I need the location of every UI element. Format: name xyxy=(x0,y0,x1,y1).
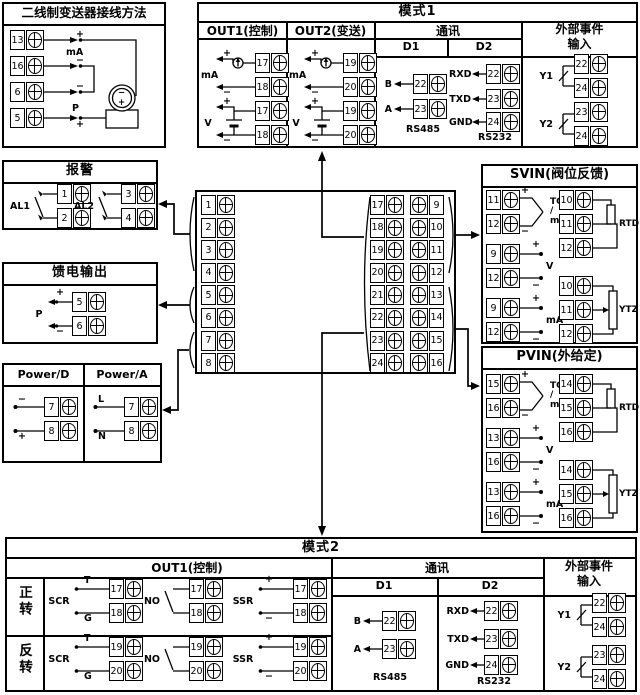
terminal-number: 19 xyxy=(343,101,358,121)
terminal-number: 18 xyxy=(109,603,124,623)
terminal: 6 xyxy=(72,316,106,336)
terminal-number: 14 xyxy=(559,374,574,394)
terminal-number: 1 xyxy=(57,184,72,204)
screw-terminal-icon xyxy=(217,240,235,260)
terminal: 20 xyxy=(343,125,377,145)
terminal-number: 5 xyxy=(201,285,216,305)
screw-terminal-icon xyxy=(205,661,223,681)
terminal: 19 xyxy=(370,240,404,260)
left-arrow-wire xyxy=(472,89,486,109)
terminal-number: 17 xyxy=(189,579,204,599)
terminal-number: 19 xyxy=(343,53,358,73)
screw-terminal-icon xyxy=(575,484,593,504)
terminal: 14 xyxy=(559,374,593,394)
signal-label: GND xyxy=(443,660,470,671)
mode1-event-header: 外部事件输入 xyxy=(523,22,636,52)
terminal: 16 xyxy=(410,353,444,373)
transmitter-plus: + xyxy=(118,99,125,108)
terminal: 17 xyxy=(370,195,404,215)
terminal-number: 2 xyxy=(57,208,72,228)
pvin-v-group: 13 16 + − V xyxy=(486,428,553,472)
terminal: 6 xyxy=(10,82,44,102)
left-arrow-wire xyxy=(470,629,484,649)
screw-terminal-icon xyxy=(502,482,520,502)
screw-terminal-icon xyxy=(271,101,289,121)
terminal: 2 xyxy=(201,218,235,238)
terminal: 3 xyxy=(201,240,235,260)
transmitter-box: 二线制变送器接线方法 13 16 6 5 + mA − − P + − + xyxy=(2,2,166,148)
signal-label: RXD xyxy=(449,69,472,80)
alarm-title: 报警 xyxy=(4,162,156,184)
transmitter-terminals: 13 16 6 5 xyxy=(10,30,44,128)
terminal: 8 xyxy=(44,421,78,441)
scr-label: SCR xyxy=(47,654,71,665)
v-label: V xyxy=(546,261,553,272)
terminal-number: 10 xyxy=(429,218,444,238)
svin-box: SVIN(阀位反馈) 11 12 + − TC/mV 9 12 + − xyxy=(481,164,638,344)
mode2-row1-no-group: NO 17 18 xyxy=(143,579,223,623)
screw-terminal-icon xyxy=(398,611,416,631)
voltage-input-wires: + − xyxy=(520,244,546,288)
terminal-number: 12 xyxy=(486,322,501,342)
screw-terminal-icon xyxy=(271,77,289,97)
screw-terminal-icon xyxy=(575,398,593,418)
terminal-number: 17 xyxy=(255,101,270,121)
screw-terminal-icon xyxy=(410,353,428,373)
screw-terminal-icon xyxy=(26,30,44,50)
terminal: 3 xyxy=(121,184,155,204)
terminal: 15 xyxy=(559,398,593,418)
terminal-number: 23 xyxy=(486,89,501,109)
center-right-column: 9 10 11 12 13 14 15 16 xyxy=(410,195,444,373)
terminal-number: 22 xyxy=(486,64,501,84)
terminal: 24 xyxy=(370,353,404,373)
terminal: 12 xyxy=(486,268,520,288)
terminal: 20 xyxy=(343,77,377,97)
row-label-forward: 正转 xyxy=(14,585,34,618)
mode2-d2-header: D2 xyxy=(437,579,543,592)
terminal: 19 xyxy=(343,53,377,73)
terminal-number: 22 xyxy=(382,611,397,631)
terminal-number: 20 xyxy=(343,125,358,145)
terminal-number: 15 xyxy=(486,374,501,394)
left-arrow-wire xyxy=(393,99,413,119)
terminal-number: 22 xyxy=(574,54,589,74)
minus-sign: − xyxy=(76,56,84,66)
screw-terminal-icon xyxy=(386,263,404,283)
screw-terminal-icon xyxy=(410,263,428,283)
pvin-title: PVIN(外给定) xyxy=(483,348,636,370)
ytz-label: YTZ xyxy=(619,305,638,315)
terminal-number: 24 xyxy=(574,126,589,146)
screw-terminal-icon xyxy=(359,77,377,97)
screw-terminal-icon xyxy=(217,308,235,328)
mode1-out2-ma-group: mA + − 19 20 xyxy=(289,53,377,97)
terminal-number: 22 xyxy=(370,308,385,328)
screw-terminal-icon xyxy=(502,244,520,264)
terminal-number: 7 xyxy=(44,397,59,417)
rtd-resistor-wires xyxy=(593,374,619,442)
terminal: 24 xyxy=(592,617,626,637)
terminal: 11 xyxy=(559,214,593,234)
terminal: 12 xyxy=(486,322,520,342)
screw-terminal-icon xyxy=(502,506,520,526)
screw-terminal-icon xyxy=(386,331,404,351)
screw-terminal-icon xyxy=(88,316,106,336)
terminal: 16 xyxy=(559,508,593,528)
center-mid-column: 17 18 19 20 21 22 23 24 xyxy=(370,195,404,373)
mode1-comm-header: 通讯 xyxy=(375,22,521,39)
terminal-number: 1 xyxy=(201,195,216,215)
row-label-reverse: 反转 xyxy=(14,643,34,676)
terminal-number: 4 xyxy=(201,263,216,283)
terminal-number: 6 xyxy=(201,308,216,328)
terminal-number: 18 xyxy=(255,77,270,97)
wiring-diagram: 二线制变送器接线方法 13 16 6 5 + mA − − P + − + 模式… xyxy=(0,0,640,695)
screw-terminal-icon xyxy=(575,238,593,258)
terminal: 1 xyxy=(201,195,235,215)
al2-label: AL2 xyxy=(72,201,95,212)
terminal-number: 21 xyxy=(370,285,385,305)
screw-terminal-icon xyxy=(271,125,289,145)
terminal-number: 15 xyxy=(429,331,444,351)
terminal-number: 6 xyxy=(10,82,25,102)
terminal: 7 xyxy=(124,397,158,417)
terminal-number: 13 xyxy=(429,285,444,305)
screw-terminal-icon xyxy=(502,190,520,210)
terminal-number: 23 xyxy=(413,99,428,119)
feed-output-box: 馈电输出 P + − 5 6 xyxy=(2,262,158,344)
transmitter-title: 二线制变送器接线方法 xyxy=(4,4,164,26)
terminal: 18 xyxy=(255,125,289,145)
terminal-number: 20 xyxy=(189,661,204,681)
terminal-number: 18 xyxy=(293,603,308,623)
terminal-number: 17 xyxy=(255,53,270,73)
mode1-out2-header: OUT2(变送) xyxy=(287,22,374,39)
screw-terminal-icon xyxy=(502,214,520,234)
terminal: 22 xyxy=(592,593,626,613)
terminal: 13 xyxy=(486,482,520,502)
left-arrow-wire xyxy=(470,655,484,675)
terminal: 10 xyxy=(559,190,593,210)
terminal: 17 xyxy=(255,53,289,73)
rs485-label: RS485 xyxy=(395,124,451,135)
screw-terminal-icon xyxy=(590,126,608,146)
terminal-number: 16 xyxy=(429,353,444,373)
thermocouple-wires: + − xyxy=(520,190,548,234)
terminal-number: 12 xyxy=(486,214,501,234)
screw-terminal-icon xyxy=(502,398,520,418)
minus-sign: − xyxy=(76,82,84,92)
terminal: 24 xyxy=(574,78,608,98)
terminal-number: 10 xyxy=(559,276,574,296)
terminal-number: 16 xyxy=(559,422,574,442)
terminal: 22 xyxy=(486,64,520,84)
terminal: 22 xyxy=(484,601,518,621)
left-arrow-wire xyxy=(472,64,486,84)
potentiometer-wires xyxy=(593,276,619,344)
terminal: 9 xyxy=(410,195,444,215)
terminal: 17 xyxy=(293,579,327,599)
terminal-number: 14 xyxy=(559,460,574,480)
terminal: 5 xyxy=(72,292,106,312)
screw-terminal-icon xyxy=(271,53,289,73)
terminal-number: 8 xyxy=(44,421,59,441)
mode2-box: 模式2 OUT1(控制) 通讯 D1 D2 外部事件输入 正转 反转 SCR T… xyxy=(5,537,637,692)
terminal: 18 xyxy=(293,603,327,623)
al1-label: AL1 xyxy=(8,201,31,212)
terminal-number: 10 xyxy=(559,190,574,210)
terminal: 16 xyxy=(486,398,520,418)
ssr-wires: + − xyxy=(255,579,293,623)
screw-terminal-icon xyxy=(575,214,593,234)
screw-terminal-icon xyxy=(502,452,520,472)
v-label: V xyxy=(201,118,215,129)
terminal-number: 24 xyxy=(592,617,607,637)
terminal: 15 xyxy=(486,374,520,394)
mode2-event-y1-group: Y1 22 24 xyxy=(555,593,626,637)
screw-terminal-icon xyxy=(410,331,428,351)
terminal-number: 11 xyxy=(559,300,574,320)
ma-label: mA xyxy=(201,70,215,81)
mode1-d1-row-a: A 23 xyxy=(378,99,447,119)
terminal: 10 xyxy=(410,218,444,238)
terminal-number: 16 xyxy=(559,508,574,528)
terminal-number: 16 xyxy=(10,56,25,76)
scr-wires: T G xyxy=(71,637,109,681)
terminal: 14 xyxy=(559,460,593,480)
terminal: 4 xyxy=(121,208,155,228)
mode2-d1-row-a: A 23 xyxy=(347,639,416,659)
mode1-d1-row-b: B 22 xyxy=(378,74,447,94)
terminal-number: 24 xyxy=(370,353,385,373)
voltage-source-wires: + − xyxy=(303,101,343,145)
mode2-d2-row-rxd: RXD 22 xyxy=(443,601,518,621)
screw-terminal-icon xyxy=(502,298,520,318)
terminal: 19 xyxy=(293,637,327,657)
terminal: 24 xyxy=(486,112,520,132)
terminal-number: 6 xyxy=(72,316,87,336)
mode2-out1-header: OUT1(控制) xyxy=(43,559,331,576)
terminal-number: 11 xyxy=(429,240,444,260)
signal-label: A xyxy=(347,644,362,655)
screw-terminal-icon xyxy=(26,82,44,102)
terminal-number: 3 xyxy=(121,184,136,204)
terminal-number: 24 xyxy=(484,655,499,675)
terminal: 23 xyxy=(486,89,520,109)
mode2-event-header: 外部事件输入 xyxy=(543,559,635,589)
feed-title: 馈电输出 xyxy=(4,264,156,286)
y2-label: Y2 xyxy=(555,662,572,673)
terminal: 20 xyxy=(293,661,327,681)
voltage-source-wires: + − xyxy=(215,101,255,145)
screw-terminal-icon xyxy=(217,218,235,238)
screw-terminal-icon xyxy=(125,637,143,657)
screw-terminal-icon xyxy=(26,56,44,76)
mode2-d1-row-b: B 22 xyxy=(347,611,416,631)
terminal: 11 xyxy=(559,300,593,320)
terminal: 22 xyxy=(370,308,404,328)
terminal: 18 xyxy=(109,603,143,623)
mode2-d2-row-txd: TXD 23 xyxy=(443,629,518,649)
center-left-column: 1 2 3 4 5 6 7 8 xyxy=(201,195,235,373)
terminal-number: 5 xyxy=(72,292,87,312)
terminal: 19 xyxy=(343,101,377,121)
current-source-wires: + − xyxy=(303,53,343,97)
terminal-number: 12 xyxy=(429,263,444,283)
mode2-d2-row-gnd: GND 24 xyxy=(443,655,518,675)
terminal: 16 xyxy=(486,452,520,472)
mode1-out2-v-group: V + − 19 20 xyxy=(289,101,377,145)
terminal-number: 18 xyxy=(189,603,204,623)
mode1-d2-header: D2 xyxy=(448,40,520,53)
screw-terminal-icon xyxy=(60,421,78,441)
plus-sign: + xyxy=(76,30,84,40)
screw-terminal-icon xyxy=(26,108,44,128)
screw-terminal-icon xyxy=(309,579,327,599)
scr-wires: T G xyxy=(71,579,109,623)
relay-contact-wires xyxy=(31,184,57,228)
screw-terminal-icon xyxy=(217,331,235,351)
terminal: 22 xyxy=(382,611,416,631)
screw-terminal-icon xyxy=(386,285,404,305)
feed-wires: + − xyxy=(46,292,72,336)
relay-contact-wires xyxy=(161,579,189,623)
screw-terminal-icon xyxy=(500,655,518,675)
terminal-number: 11 xyxy=(486,190,501,210)
screw-terminal-icon xyxy=(575,508,593,528)
mode1-title: 模式1 xyxy=(199,4,636,23)
terminal-number: 15 xyxy=(559,484,574,504)
screw-terminal-icon xyxy=(359,101,377,121)
screw-terminal-icon xyxy=(590,54,608,74)
screw-terminal-icon xyxy=(410,195,428,215)
switch-contact-wires xyxy=(572,645,592,689)
screw-terminal-icon xyxy=(410,240,428,260)
terminal: 12 xyxy=(559,324,593,344)
y1-label: Y1 xyxy=(555,610,572,621)
terminal: 14 xyxy=(410,308,444,328)
terminal: 12 xyxy=(486,214,520,234)
terminal: 24 xyxy=(592,669,626,689)
alarm-al2-group: AL2 3 4 xyxy=(72,184,155,228)
terminal-number: 20 xyxy=(109,661,124,681)
screw-terminal-icon xyxy=(608,617,626,637)
signal-label: B xyxy=(378,79,393,90)
screw-terminal-icon xyxy=(410,218,428,238)
screw-terminal-icon xyxy=(575,324,593,344)
screw-terminal-icon xyxy=(359,125,377,145)
screw-terminal-icon xyxy=(500,629,518,649)
screw-terminal-icon xyxy=(502,322,520,342)
terminal-number: 13 xyxy=(486,482,501,502)
screw-terminal-icon xyxy=(386,308,404,328)
screw-terminal-icon xyxy=(575,460,593,480)
signal-label: B xyxy=(347,616,362,627)
terminal-number: 24 xyxy=(592,669,607,689)
v-label: V xyxy=(546,445,553,456)
pvin-ma-group: 13 16 + − mA xyxy=(486,482,563,526)
terminal-number: 12 xyxy=(559,238,574,258)
rtd-resistor-wires xyxy=(593,190,619,258)
screw-terminal-icon xyxy=(137,208,155,228)
screw-terminal-icon xyxy=(205,579,223,599)
terminal-number: 9 xyxy=(429,195,444,215)
potentiometer-wires xyxy=(593,460,619,528)
alarm-box: 报警 AL1 1 2 AL2 3 4 xyxy=(2,160,158,230)
screw-terminal-icon xyxy=(386,353,404,373)
terminal: 17 xyxy=(109,579,143,599)
mode2-row1-scr-group: SCR T G 17 18 xyxy=(47,579,143,623)
screw-terminal-icon xyxy=(309,637,327,657)
screw-terminal-icon xyxy=(140,397,158,417)
signal-label: A xyxy=(378,104,393,115)
terminal-number: 13 xyxy=(486,428,501,448)
terminal-number: 23 xyxy=(592,645,607,665)
terminal: 16 xyxy=(486,506,520,526)
screw-terminal-icon xyxy=(575,422,593,442)
screw-terminal-icon xyxy=(608,593,626,613)
switch-contact-wires xyxy=(554,102,574,146)
terminal-number: 7 xyxy=(124,397,139,417)
terminal-number: 8 xyxy=(124,421,139,441)
p-label: P xyxy=(72,104,79,114)
terminal-number: 20 xyxy=(370,263,385,283)
screw-terminal-icon xyxy=(125,661,143,681)
screw-terminal-icon xyxy=(217,353,235,373)
y1-label: Y1 xyxy=(537,71,554,82)
terminal-number: 16 xyxy=(486,398,501,418)
terminal-number: 22 xyxy=(413,74,428,94)
terminal: 7 xyxy=(44,397,78,417)
terminal: 18 xyxy=(189,603,223,623)
screw-terminal-icon xyxy=(386,218,404,238)
screw-terminal-icon xyxy=(205,603,223,623)
screw-terminal-icon xyxy=(608,645,626,665)
no-label: NO xyxy=(143,596,161,607)
terminal-number: 17 xyxy=(293,579,308,599)
terminal: 21 xyxy=(370,285,404,305)
svin-rtd-group: 10 11 12 RTD xyxy=(559,190,639,258)
screw-terminal-icon xyxy=(386,240,404,260)
terminal-number: 17 xyxy=(109,579,124,599)
rtd-label: RTD xyxy=(619,403,639,413)
relay-contact-wires xyxy=(161,637,189,681)
terminal: 23 xyxy=(413,99,447,119)
mode1-d2-row-rxd: RXD 22 xyxy=(449,64,520,84)
terminal: 5 xyxy=(10,108,44,128)
screw-terminal-icon xyxy=(429,74,447,94)
left-arrow-wire xyxy=(362,611,382,631)
screw-terminal-icon xyxy=(410,285,428,305)
terminal: 23 xyxy=(592,645,626,665)
mode1-out1-header: OUT1(控制) xyxy=(199,22,286,39)
pvin-box: PVIN(外给定) 15 16 + − TC/mV 13 16 + − xyxy=(481,346,638,533)
scr-label: SCR xyxy=(47,596,71,607)
mode2-event-y2-group: Y2 23 24 xyxy=(555,645,626,689)
signal-label: GND xyxy=(449,117,472,128)
ssr-wires: + − xyxy=(255,637,293,681)
terminal-number: 23 xyxy=(370,331,385,351)
screw-terminal-icon xyxy=(502,89,520,109)
svin-ytz-group: 10 11 12 YTZ xyxy=(559,276,638,344)
terminal: 7 xyxy=(201,331,235,351)
v-label: V xyxy=(289,118,303,129)
ytz-label: YTZ xyxy=(619,489,638,499)
screw-terminal-icon xyxy=(575,190,593,210)
svin-ma-group: 9 12 + − mA xyxy=(486,298,563,342)
terminal-number: 9 xyxy=(486,244,501,264)
